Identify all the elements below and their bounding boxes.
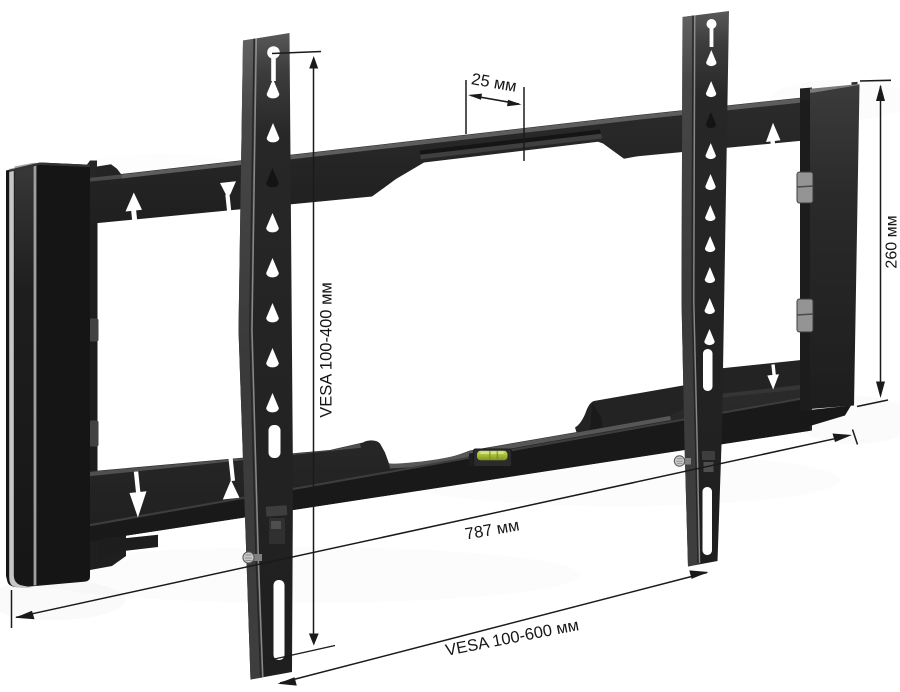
svg-text:260 мм: 260 мм bbox=[884, 215, 900, 268]
svg-text:VESA 100-400 мм: VESA 100-400 мм bbox=[318, 282, 336, 418]
